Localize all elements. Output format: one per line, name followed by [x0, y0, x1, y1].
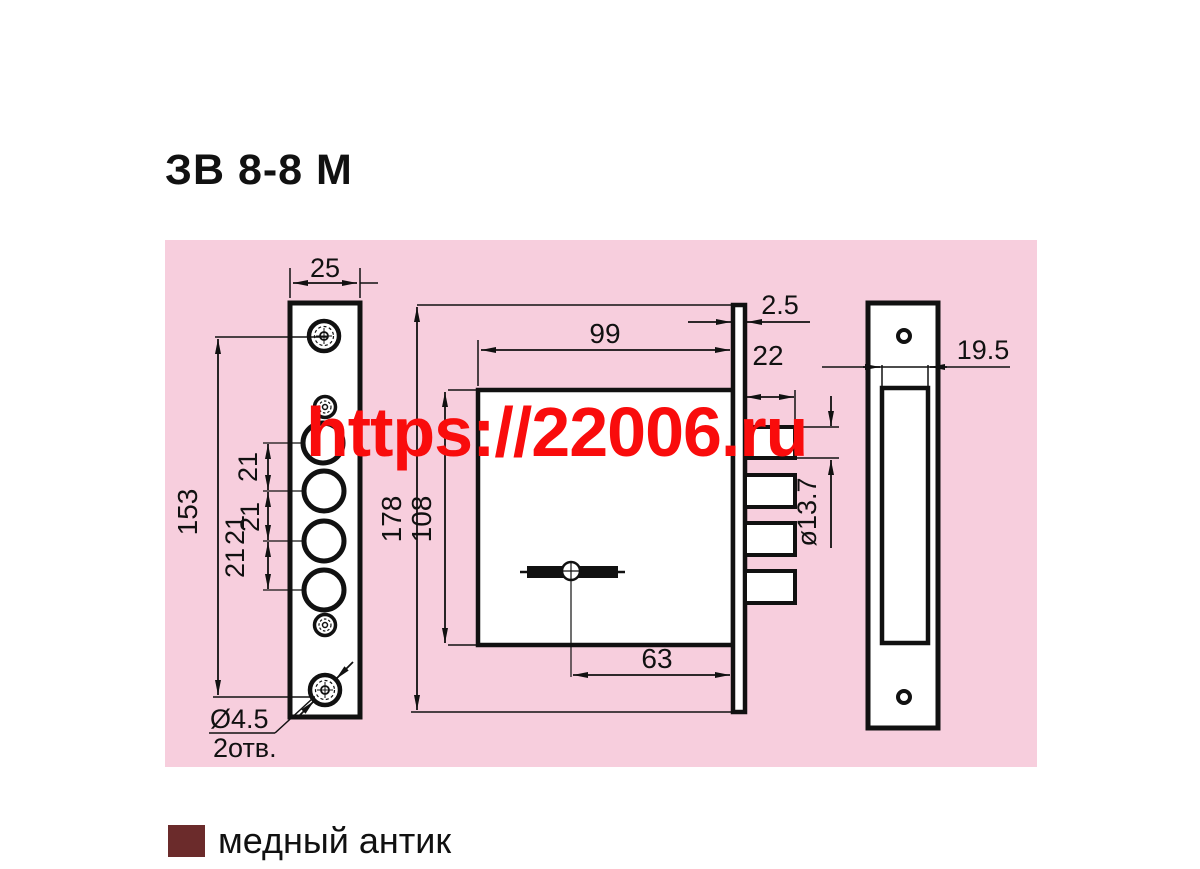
bolt-2 — [745, 475, 795, 507]
dim-hole-spacing-4: 21 — [220, 548, 250, 578]
faceplate-front-view — [209, 268, 378, 733]
technical-drawing: 25 153 21 21 21 21 Ø4.5 2отв. — [165, 240, 1037, 767]
drawing-panel: 25 153 21 21 21 21 Ø4.5 2отв. — [165, 240, 1037, 767]
bolt-hole-2 — [304, 471, 344, 511]
dim-hole-spacing-3: 21 — [220, 515, 250, 545]
dim-bolt-throw: 22 — [752, 340, 783, 371]
bolt-3 — [745, 523, 795, 555]
screw-hole-bottom — [310, 675, 340, 705]
small-hole-lower — [315, 615, 336, 636]
color-swatch-copper-antique — [168, 825, 205, 857]
strike-screw-hole-top — [898, 330, 910, 342]
dim-face-height: 178 — [376, 496, 407, 543]
dim-faceplate-width: 25 — [310, 253, 340, 283]
dim-body-height: 108 — [406, 496, 437, 543]
strike-slot — [882, 388, 928, 643]
dim-screw-hole-count: 2отв. — [213, 733, 277, 763]
finish-label: медный антик — [218, 820, 451, 862]
dim-bolt-dia: ø13.7 — [792, 477, 822, 546]
strike-screw-hole-bottom — [898, 691, 910, 703]
screw-hole-top — [309, 321, 339, 351]
bolt-4 — [745, 571, 795, 603]
dim-faceplate-height: 153 — [172, 489, 203, 536]
dim-body-width: 99 — [589, 318, 620, 349]
page-title: ЗВ 8-8 М — [165, 146, 353, 195]
watermark-url: https://22006.ru — [306, 396, 807, 470]
finish-legend: медный антик — [168, 820, 451, 862]
page: ЗВ 8-8 М — [0, 0, 1200, 869]
dim-face-thickness: 2.5 — [761, 290, 799, 320]
bolt-hole-4 — [304, 570, 344, 610]
dim-key-backset: 63 — [641, 643, 672, 674]
strike-plate-view — [822, 303, 1010, 728]
dim-slot-width: 19.5 — [957, 335, 1010, 365]
dim-hole-spacing-1: 21 — [233, 452, 263, 482]
dim-screw-hole-dia: Ø4.5 — [210, 704, 269, 734]
bolt-hole-3 — [304, 521, 344, 561]
